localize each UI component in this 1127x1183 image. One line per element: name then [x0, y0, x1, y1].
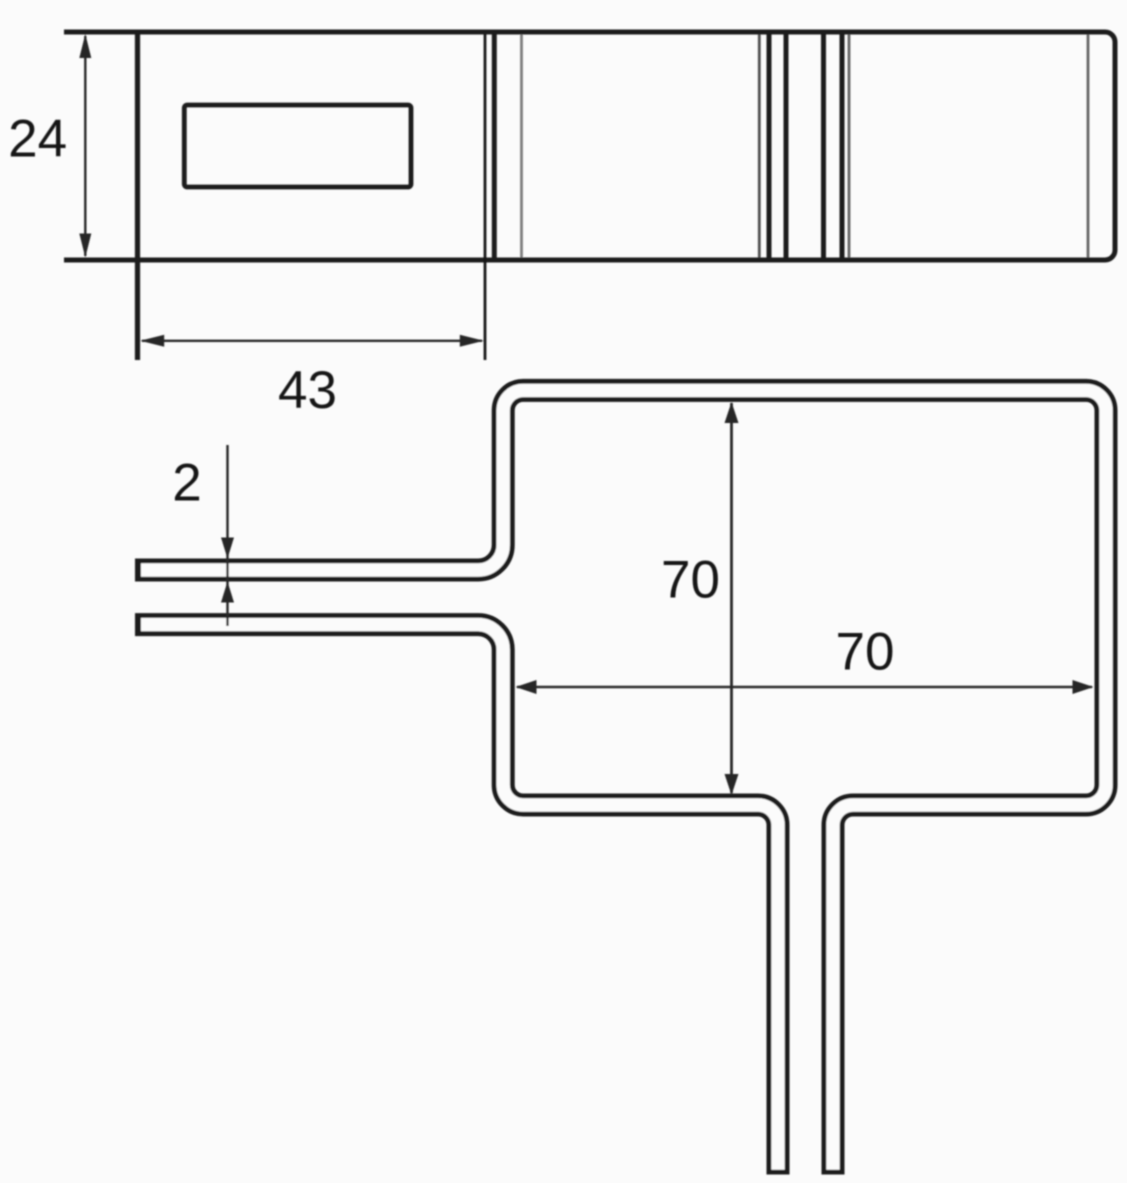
svg-text:70: 70: [836, 623, 895, 682]
svg-text:2: 2: [172, 454, 201, 513]
svg-text:24: 24: [8, 110, 67, 169]
svg-text:43: 43: [278, 361, 337, 420]
svg-text:70: 70: [661, 551, 720, 610]
